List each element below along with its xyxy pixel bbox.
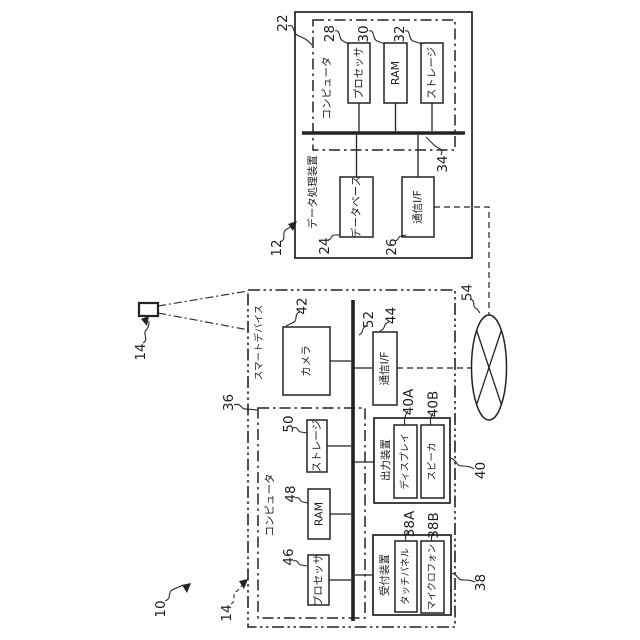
sd-camera-label: カメラ: [301, 345, 313, 377]
system-ref: 10: [153, 600, 169, 617]
dpd-processor-ref: 28: [322, 25, 338, 42]
sd-storage-label: ストレージ: [311, 420, 323, 472]
leader-22: [288, 25, 312, 45]
dpd-database-label: データベース: [350, 176, 363, 238]
arrowhead-10: [182, 583, 191, 593]
sd-commif-ref: 44: [384, 307, 400, 324]
leader-26: [395, 235, 406, 241]
sd-title: スマートデバイス: [253, 305, 265, 380]
leader-10: [165, 585, 183, 601]
sd-processor-label: プロセッサ: [313, 554, 325, 607]
leader-36: [234, 404, 257, 410]
smart-device: スマートデバイス 14 カメラ 42 52 通信I/F 44 コンピュータ 36…: [133, 290, 489, 627]
dpd-ref: 12: [269, 239, 285, 256]
dpd-database-ref: 24: [317, 237, 333, 254]
dpd-ram-ref: 30: [356, 25, 372, 42]
sd-touchpanel-label: タッチパネル: [401, 548, 412, 606]
patent-figure-page: データ処理装置 コンピュータ プロセッサ RAM ストレージ データベース 通信…: [0, 0, 640, 640]
sd-computer-label: コンピュータ: [264, 474, 276, 537]
dpd-bus-ref: 34: [435, 155, 451, 172]
sd-reception-label: 受付装置: [378, 554, 391, 596]
network-symbol: 54: [460, 284, 507, 420]
projection-line-upper: [158, 291, 248, 306]
sd-camera-ref: 42: [295, 297, 311, 314]
dpd-ram-label: RAM: [389, 61, 402, 85]
dpd-computer-ref: 22: [275, 14, 291, 31]
sd-touchpanel-ref: 38A: [402, 510, 418, 537]
sd-processor-ref: 46: [281, 548, 297, 565]
arrowhead-14-device: [239, 579, 248, 589]
sd-output-label: 出力装置: [379, 439, 392, 481]
sd-reception-ref: 38: [473, 574, 489, 591]
device-icon: [139, 303, 158, 316]
sd-ram-ref: 48: [283, 485, 299, 502]
network-ref: 54: [460, 284, 476, 301]
dpd-commif-label: 通信I/F: [412, 190, 424, 224]
sd-microphone-ref: 38B: [426, 512, 442, 538]
sd-commif-label: 通信I/F: [379, 352, 391, 386]
sd-ram-label: RAM: [313, 502, 326, 526]
sd-speaker-label: スピーカ: [427, 442, 438, 480]
arrowhead-14-icon: [141, 316, 149, 326]
dpd-computer-label: コンピュータ: [321, 57, 333, 120]
sd-output-ref: 40: [473, 462, 489, 479]
data-processing-device: データ処理装置 コンピュータ プロセッサ RAM ストレージ データベース 通信…: [269, 12, 472, 258]
sd-display-ref: 40A: [401, 388, 417, 415]
sd-ref: 14: [219, 604, 235, 621]
system-reference: 10: [153, 583, 191, 618]
projection-line-lower: [158, 313, 249, 330]
sd-computer-ref: 36: [221, 394, 237, 411]
dpd-storage-label: ストレージ: [426, 47, 438, 99]
dpd-commif-ref: 26: [384, 238, 400, 255]
leader-34: [426, 137, 442, 155]
device-icon-ref: 14: [133, 343, 149, 360]
sd-speaker-ref: 40B: [426, 391, 442, 417]
dpd-processor-label: プロセッサ: [353, 47, 365, 100]
dpd-storage-ref: 32: [392, 25, 408, 42]
sd-storage-ref: 50: [281, 415, 297, 432]
patent-block-diagram: データ処理装置 コンピュータ プロセッサ RAM ストレージ データベース 通信…: [0, 0, 640, 640]
dpd-title: データ処理装置: [306, 155, 319, 229]
sd-display-label: ディスプレイ: [399, 433, 411, 489]
sd-bus-ref: 52: [361, 311, 377, 328]
sd-microphone-label: マイクロフォン: [427, 544, 438, 610]
